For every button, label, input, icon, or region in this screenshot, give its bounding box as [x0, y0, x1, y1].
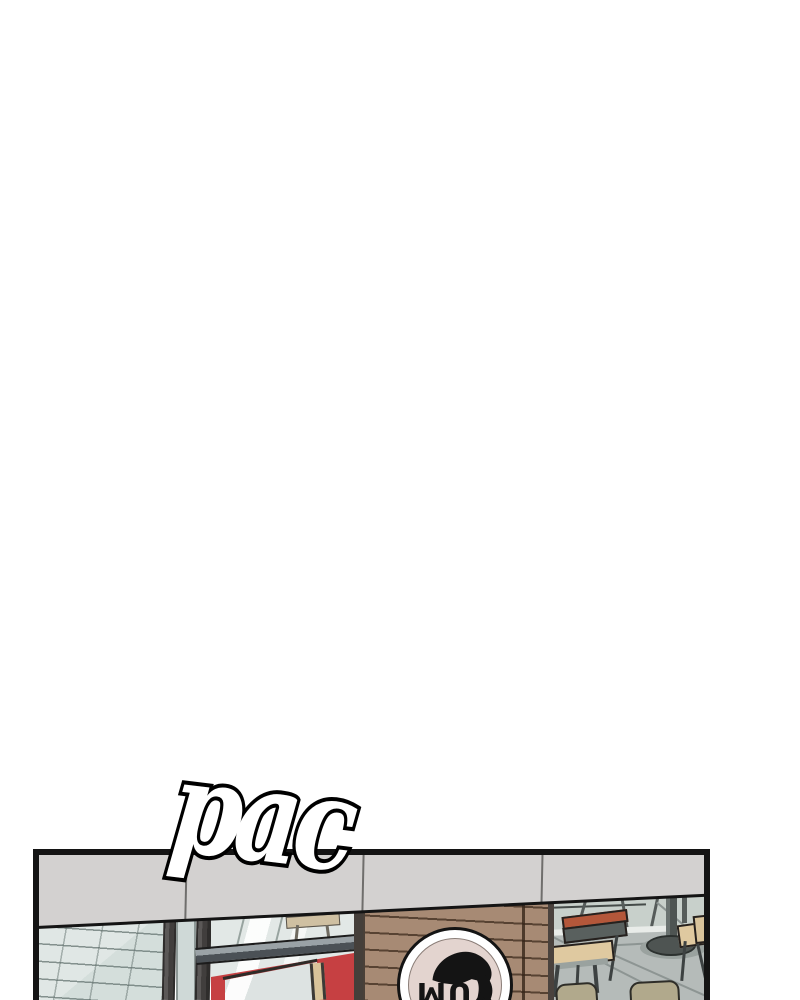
comic-panel: YUM [33, 849, 710, 1000]
chair-seat [693, 914, 704, 944]
comic-page: YUM [0, 0, 800, 1000]
yum-logo-face: YUM [408, 938, 502, 1000]
door-interior-wall-strip [310, 963, 327, 1000]
chair-frame-bar [682, 895, 687, 923]
foreground-stool [629, 980, 681, 1000]
foreground-stool [555, 982, 599, 1000]
sfx-text: pac [164, 742, 357, 891]
yum-logo-text: YUM [409, 977, 501, 1000]
